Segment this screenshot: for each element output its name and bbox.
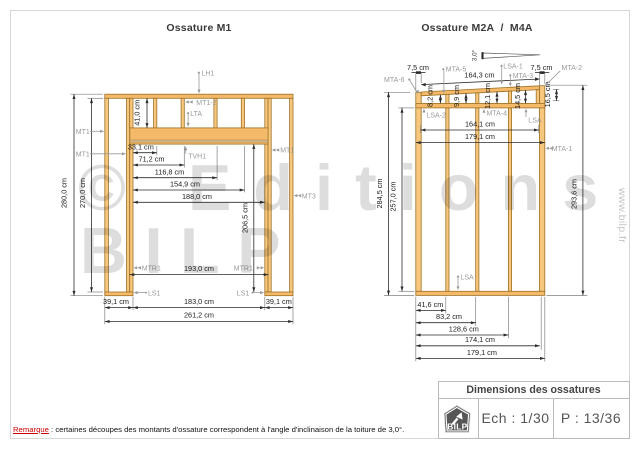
svg-text:MTA-6: MTA-6 [384,77,405,84]
svg-text:128,6 cm: 128,6 cm [449,324,479,333]
svg-text:MTA-3: MTA-3 [513,73,534,80]
svg-text:179,1 cm: 179,1 cm [465,132,495,141]
svg-text:MTA-4: MTA-4 [487,110,508,117]
svg-text:9,9 cm: 9,9 cm [452,85,461,107]
svg-text:41,6 cm: 41,6 cm [417,300,443,309]
svg-text:LSA: LSA [461,274,475,281]
svg-text:83,2 cm: 83,2 cm [436,312,462,321]
svg-text:7,5 cm: 7,5 cm [531,63,553,72]
svg-text:LTA: LTA [190,111,202,118]
svg-text:12,1 cm: 12,1 cm [483,83,492,109]
svg-text:MTA-5: MTA-5 [446,67,467,74]
svg-text:164,1 cm: 164,1 cm [465,119,495,128]
svg-text:7,5 cm: 7,5 cm [407,63,429,72]
svg-text:39,1 cm: 39,1 cm [266,297,292,306]
svg-text:14,5 cm: 14,5 cm [513,83,522,109]
svg-text:39,1 cm: 39,1 cm [103,297,129,306]
svg-text:LS1: LS1 [148,290,161,297]
svg-text:MTA-2: MTA-2 [562,65,583,72]
svg-text:MT1: MT1 [76,129,90,136]
svg-text:MT1-2: MT1-2 [196,100,216,107]
svg-text:183,0 cm: 183,0 cm [184,297,214,306]
svg-text:LSA-2: LSA-2 [427,113,447,120]
svg-text:261,2 cm: 261,2 cm [184,311,214,320]
svg-text:3,0°: 3,0° [471,49,479,61]
svg-text:280,0 cm: 280,0 cm [60,178,69,208]
svg-text:LSA: LSA [528,117,542,124]
svg-text:LS1: LS1 [237,290,250,297]
svg-text:41,0 cm: 41,0 cm [133,100,142,126]
svg-text:BILP: BILP [447,421,467,431]
svg-text:174,1 cm: 174,1 cm [465,335,495,344]
svg-text:LSA-1: LSA-1 [503,64,523,71]
svg-text:33,1 cm: 33,1 cm [128,142,154,151]
svg-text:LH1: LH1 [202,71,215,78]
svg-text:179,1 cm: 179,1 cm [467,348,497,357]
svg-text:164,3 cm: 164,3 cm [464,71,494,80]
svg-text:8,2 cm: 8,2 cm [425,85,434,107]
